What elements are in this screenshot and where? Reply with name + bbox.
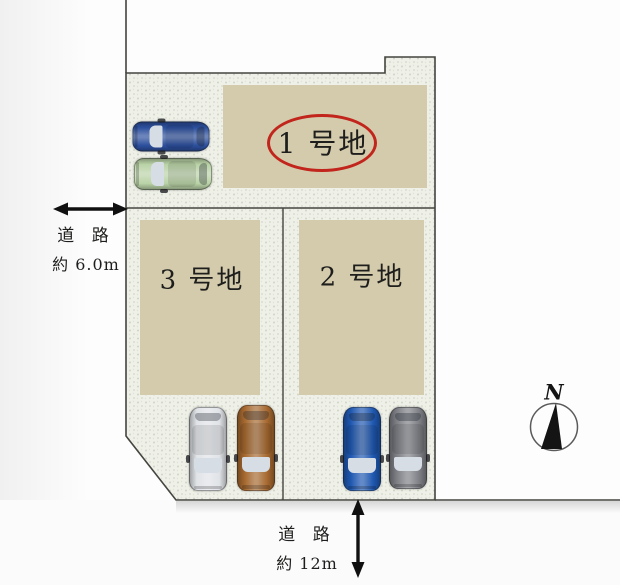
car-lot3-brown bbox=[237, 405, 275, 491]
road-left-annotation: 道 路 約 6.0m bbox=[38, 221, 134, 275]
car-roof bbox=[240, 423, 271, 454]
car-bumper bbox=[394, 484, 421, 487]
road-left-name: 道 路 bbox=[38, 221, 134, 246]
lot-3-label: 3 号地 bbox=[160, 260, 245, 297]
road-bottom-name: 道 路 bbox=[260, 520, 354, 545]
car-mirror-left bbox=[386, 454, 390, 462]
car-mirror-right bbox=[426, 454, 430, 462]
car-roof bbox=[346, 425, 377, 455]
car-lot2-blue bbox=[343, 407, 381, 491]
car-lot1-green bbox=[134, 158, 212, 190]
road-bottom-annotation: 道 路 約 12m bbox=[260, 520, 354, 574]
car-bumper bbox=[136, 162, 139, 185]
car-windshield bbox=[242, 457, 271, 472]
car-roof bbox=[192, 425, 223, 455]
car-rear-window bbox=[395, 413, 421, 421]
car-windshield bbox=[151, 162, 164, 186]
lot-2-label: 2 号地 bbox=[320, 257, 405, 294]
car-mirror-right bbox=[158, 151, 166, 155]
car-bumper bbox=[348, 486, 375, 489]
car-roof bbox=[392, 424, 423, 454]
car-mirror-left bbox=[234, 454, 238, 462]
compass-icon bbox=[531, 403, 578, 451]
car-windshield bbox=[194, 458, 223, 472]
car-roof bbox=[166, 124, 194, 149]
car-mirror-left bbox=[158, 119, 166, 123]
car-bumper bbox=[194, 486, 221, 489]
car-mirror-left bbox=[340, 455, 344, 463]
car-rear-window bbox=[199, 163, 207, 185]
road-width-arrow-left bbox=[53, 203, 128, 216]
car-mirror-right bbox=[226, 455, 230, 463]
car-mirror-right bbox=[274, 454, 278, 462]
road-edge-shadow bbox=[176, 501, 620, 513]
car-mirror-left bbox=[160, 155, 168, 159]
car-mirror-left bbox=[186, 455, 190, 463]
plot-plan-svg bbox=[0, 0, 620, 585]
car-lot2-grey bbox=[389, 407, 427, 489]
car-lot3-silver bbox=[189, 407, 227, 491]
car-lot1-blue bbox=[133, 122, 210, 152]
lot-3-area bbox=[140, 220, 260, 395]
lot-2-area bbox=[299, 220, 424, 395]
car-windshield bbox=[394, 457, 423, 471]
car-rear-window bbox=[243, 411, 269, 420]
car-rear-window bbox=[195, 413, 221, 421]
car-mirror-right bbox=[160, 189, 168, 193]
car-rear-window bbox=[196, 126, 204, 146]
compass-north-label: N bbox=[544, 380, 563, 405]
road-left-width: 約 6.0m bbox=[38, 251, 134, 275]
road-bottom-width: 約 12m bbox=[260, 550, 354, 574]
car-windshield bbox=[348, 458, 377, 472]
car-bumper bbox=[134, 126, 137, 148]
lot-1-label: 1 号地 bbox=[278, 122, 369, 162]
car-mirror-right bbox=[380, 455, 384, 463]
car-windshield bbox=[149, 125, 162, 148]
car-rear-window bbox=[349, 413, 375, 421]
car-roof bbox=[168, 161, 196, 187]
site-plan-diagram: 1 号地 2 号地 3 号地 道 路 約 6.0m 道 路 約 12m N bbox=[0, 0, 620, 585]
car-bumper bbox=[242, 485, 269, 488]
